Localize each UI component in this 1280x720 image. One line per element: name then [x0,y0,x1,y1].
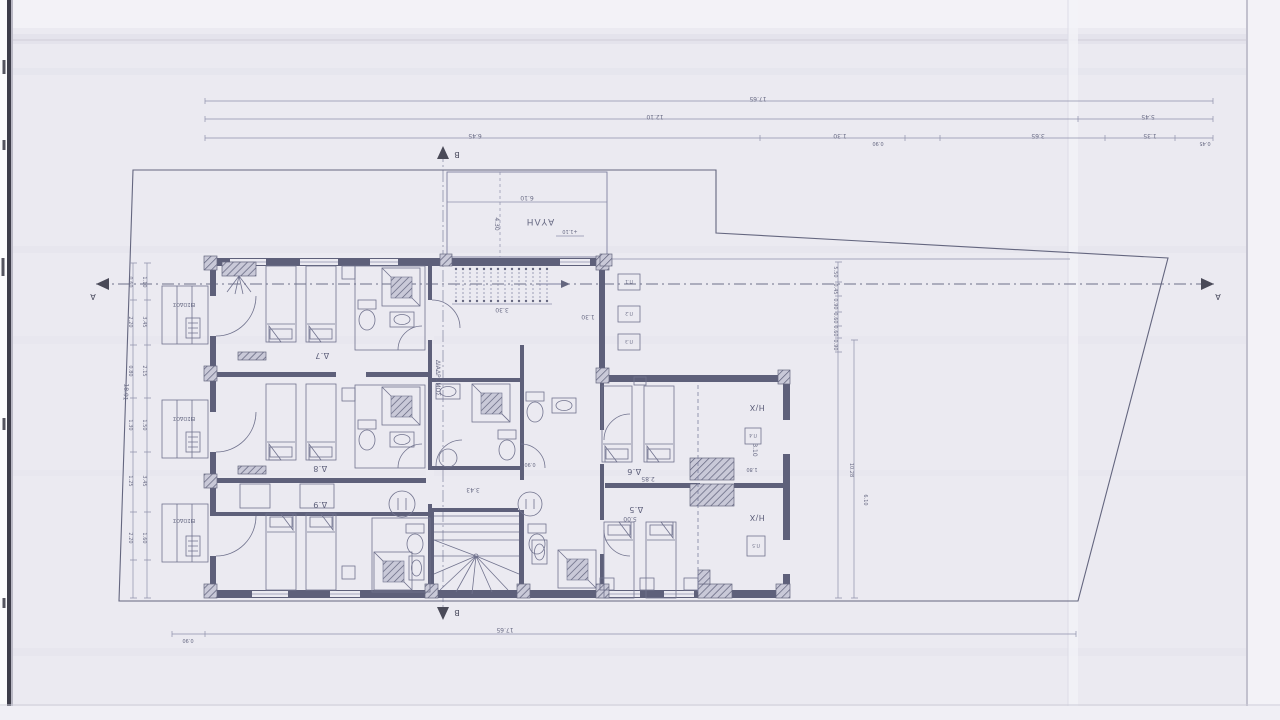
dim-label: 3.43 [466,486,480,493]
scan-band [0,34,1280,44]
paper-fold [1068,0,1078,720]
section-a-label-right: A [1215,292,1221,301]
wall-mid-1 [210,372,428,377]
section-b-label-top: B [454,150,460,159]
room-label-9: Δ.9 [313,500,327,509]
svg-text:0.90: 0.90 [832,298,838,309]
svg-text:2.15: 2.15 [141,365,147,376]
left-scan-edge-2 [11,0,13,720]
dim-label: 1.35 [1143,132,1157,139]
scan-band [0,648,1280,656]
dim-label: 0.90 [524,461,535,467]
svg-text:0.90: 0.90 [832,339,838,350]
boundary-dim: 18.91 [122,383,130,401]
paper-background [0,0,1280,720]
scan-artifacts [0,0,1280,720]
svg-text:2.20: 2.20 [127,316,133,327]
wall-right-wing-top [605,375,790,382]
dim-label: 3.65 [1031,132,1045,139]
dim-label: 0.45 [1199,140,1210,146]
svg-text:Π.1: Π.1 [625,278,633,284]
scan-band [0,246,1280,253]
svg-text:0.60: 0.60 [832,325,838,336]
left-scan-edge [7,0,11,720]
left-margin [0,0,7,720]
bottom-band [0,706,1280,720]
ac-unit [690,458,734,480]
entrance-label-2: ΕΙΣΟΔΟΣ [173,415,195,421]
dim-label: 0.90 [872,140,883,146]
scan-band [0,0,1280,28]
svg-text:0.60: 0.60 [127,276,133,287]
svg-text:0.45: 0.45 [832,283,838,294]
svg-text:Π.4: Π.4 [749,432,757,438]
dim-label: 5.00 [623,515,637,522]
dim-label: 1.80 [746,466,757,472]
right-scan-edge [1246,0,1248,720]
svg-text:3.45: 3.45 [141,475,147,486]
scan-band [0,68,1280,75]
section-a-label-left: A [90,292,96,301]
dim-label: 2.85 [641,475,655,482]
wall-right-upper [599,258,605,378]
courtyard-dim-h: 4.30 [493,217,500,231]
room-label-6: Δ.6 [627,467,641,476]
dim-label: 3.10 [751,443,758,457]
svg-text:1.50: 1.50 [141,419,147,430]
wall-top [210,258,605,266]
semi-open-label-1: Η/Χ [749,403,765,412]
entrance-label-1: ΕΙΣΟΔΟΣ [173,301,195,307]
tv-unit [238,352,266,360]
svg-text:6.10: 6.10 [862,494,868,505]
svg-text:0.80: 0.80 [127,365,133,376]
section-b-label-bottom: B [454,608,460,617]
dim-label: 3.30 [495,306,509,313]
svg-text:1.25: 1.25 [127,475,133,486]
svg-text:17.65: 17.65 [496,626,513,633]
wall-core-top [432,378,520,382]
courtyard-label: ΑΥΛΗ [526,216,555,226]
dim-label: 17.65 [749,95,766,102]
dim-label: 6.45 [468,132,482,139]
svg-text:5.50: 5.50 [832,266,838,277]
svg-text:+1.10: +1.10 [562,228,577,234]
room-label-7: Δ.7 [315,351,329,360]
right-margin [1248,0,1280,720]
svg-text:Π.5: Π.5 [752,542,760,548]
courtyard-dim-w: 6.10 [520,194,534,201]
svg-text:Π.2: Π.2 [625,310,633,316]
svg-text:0.90: 0.90 [182,637,193,643]
svg-text:1.30: 1.30 [127,419,133,430]
tv-unit [238,466,266,474]
ac-unit [690,484,734,506]
dim-label: 1.30 [581,313,595,320]
svg-text:1.60: 1.60 [141,532,147,543]
wardrobe [222,262,256,276]
stair-shaft-west [430,508,434,596]
scanned-floor-plan-page: 17.65 12.10 5.45 6.45 1.30 0.90 3.65 1.3… [0,0,1280,720]
semi-open-label-2: Η/Χ [749,513,765,522]
corridor-label: ΔΙΑΔΡΟΜΟΣ [434,360,441,396]
room-label-8: Δ.8 [313,464,327,473]
svg-text:10.28: 10.28 [848,463,854,477]
dim-label: 1.30 [833,132,847,139]
svg-text:2.20: 2.20 [127,532,133,543]
svg-text:Π.3: Π.3 [625,338,633,344]
stair-shaft-east [519,508,523,596]
svg-text:1.10: 1.10 [141,276,147,287]
svg-text:3.45: 3.45 [141,316,147,327]
room-label-5: Δ.5 [629,505,643,514]
dim-label: 12.10 [646,113,663,120]
entrance-label-3: ΕΙΣΟΔΟΣ [173,517,195,523]
svg-text:0.60: 0.60 [832,312,838,323]
stair-shaft-top [430,508,523,512]
floor-plan-drawing: 17.65 12.10 5.45 6.45 1.30 0.90 3.65 1.3… [0,0,1280,720]
dim-label: 5.45 [1141,113,1155,120]
wall-mid-2 [210,478,428,483]
